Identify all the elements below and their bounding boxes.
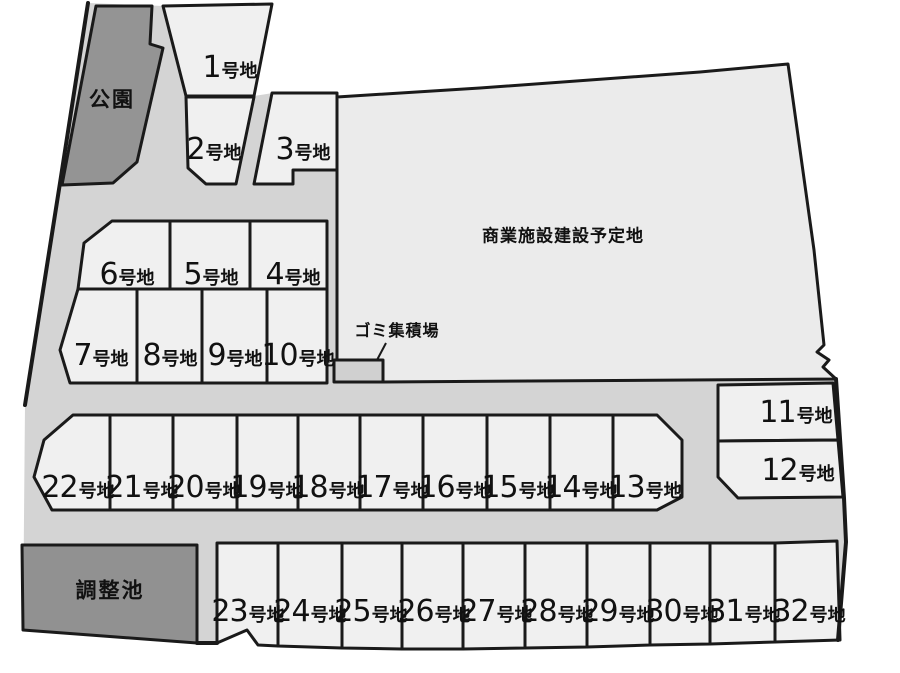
park-label: 公園 bbox=[89, 90, 135, 111]
lot-17-label: 17号地 bbox=[355, 473, 428, 503]
lot-14-suffix: 号地 bbox=[582, 481, 618, 502]
garbage-label: ゴミ集積場 bbox=[354, 323, 439, 339]
lot-13-label: 13号地 bbox=[608, 473, 681, 503]
lot-1-label: 1号地 bbox=[202, 53, 257, 83]
lot-3-suffix: 号地 bbox=[295, 143, 331, 164]
lot-10-suffix: 号地 bbox=[299, 349, 335, 370]
lot-7-label: 7号地 bbox=[73, 341, 128, 371]
lot-5-suffix: 号地 bbox=[203, 268, 239, 289]
lot-22-number: 22 bbox=[41, 470, 77, 505]
lot-12-suffix: 号地 bbox=[799, 464, 835, 485]
lot-8-suffix: 号地 bbox=[162, 349, 198, 370]
lot-3-label: 3号地 bbox=[275, 135, 330, 165]
lot-11-label: 11号地 bbox=[759, 398, 832, 428]
lot-1-suffix: 号地 bbox=[222, 61, 258, 82]
lot-6-number: 6 bbox=[99, 257, 117, 292]
lot-24-number: 24 bbox=[273, 594, 309, 629]
lot-15-suffix: 号地 bbox=[519, 481, 555, 502]
lot-27-number: 27 bbox=[459, 594, 495, 629]
site-plan-svg bbox=[0, 0, 900, 673]
lot-1-number: 1 bbox=[202, 50, 220, 85]
lot-3-number: 3 bbox=[275, 132, 293, 167]
lot-6-label: 6号地 bbox=[99, 260, 154, 290]
lot-5-label: 5号地 bbox=[183, 260, 238, 290]
lot-26-number: 26 bbox=[397, 594, 433, 629]
lot-32-number: 32 bbox=[772, 594, 808, 629]
lot-11-suffix: 号地 bbox=[797, 406, 833, 427]
lot-16-label: 16号地 bbox=[418, 473, 491, 503]
lot-32-suffix: 号地 bbox=[810, 605, 846, 626]
lot-2-number: 2 bbox=[186, 132, 204, 167]
lot-12-number: 12 bbox=[761, 453, 797, 488]
lot-8-label: 8号地 bbox=[142, 341, 197, 371]
lot-4-number: 4 bbox=[265, 257, 283, 292]
lot-10-label: 10号地 bbox=[261, 341, 334, 371]
lot-31-label: 31号地 bbox=[707, 597, 780, 627]
garbage-area bbox=[334, 360, 383, 382]
lot-16-suffix: 号地 bbox=[456, 481, 492, 502]
lot-9-suffix: 号地 bbox=[227, 349, 263, 370]
lot-7-number: 7 bbox=[73, 338, 91, 373]
lot-10-number: 10 bbox=[261, 338, 297, 373]
lot-30-number: 30 bbox=[645, 594, 681, 629]
commercial-label: 商業施設建設予定地 bbox=[482, 229, 644, 246]
lot-4-suffix: 号地 bbox=[285, 268, 321, 289]
lot-15-label: 15号地 bbox=[481, 473, 554, 503]
lot-23-number: 23 bbox=[211, 594, 247, 629]
lot-32-label: 32号地 bbox=[772, 597, 845, 627]
lot-7-suffix: 号地 bbox=[93, 349, 129, 370]
lot-8-number: 8 bbox=[142, 338, 160, 373]
lot-31-number: 31 bbox=[707, 594, 743, 629]
lot-22-label: 22号地 bbox=[41, 473, 114, 503]
lot-2-suffix: 号地 bbox=[206, 143, 242, 164]
lot-25-number: 25 bbox=[334, 594, 370, 629]
lot-21-label: 21号地 bbox=[105, 473, 178, 503]
lot-19-suffix: 号地 bbox=[268, 481, 304, 502]
lot-12-label: 12号地 bbox=[761, 456, 834, 486]
lot-22-suffix: 号地 bbox=[79, 481, 115, 502]
lot-11-number: 11 bbox=[759, 395, 795, 430]
pond-label: 調整池 bbox=[76, 581, 145, 602]
lot-6-suffix: 号地 bbox=[119, 268, 155, 289]
site-plan: 公園 調整池 商業施設建設予定地 ゴミ集積場 1号地 2号地 3号地 4号地 5… bbox=[0, 0, 900, 673]
lot-9-number: 9 bbox=[207, 338, 225, 373]
lot-21-suffix: 号地 bbox=[143, 481, 179, 502]
lot-17-suffix: 号地 bbox=[393, 481, 429, 502]
lot-29-number: 29 bbox=[581, 594, 617, 629]
lot-29-label: 29号地 bbox=[581, 597, 654, 627]
lot-13-suffix: 号地 bbox=[646, 481, 682, 502]
lot-20-suffix: 号地 bbox=[205, 481, 241, 502]
lot-2-label: 2号地 bbox=[186, 135, 241, 165]
lot-4-label: 4号地 bbox=[265, 260, 320, 290]
lot-19-label: 19号地 bbox=[230, 473, 303, 503]
lot-14-label: 14号地 bbox=[544, 473, 617, 503]
lot-28-number: 28 bbox=[520, 594, 556, 629]
lot-9-label: 9号地 bbox=[207, 341, 262, 371]
lot-5-number: 5 bbox=[183, 257, 201, 292]
lot-18-suffix: 号地 bbox=[329, 481, 365, 502]
